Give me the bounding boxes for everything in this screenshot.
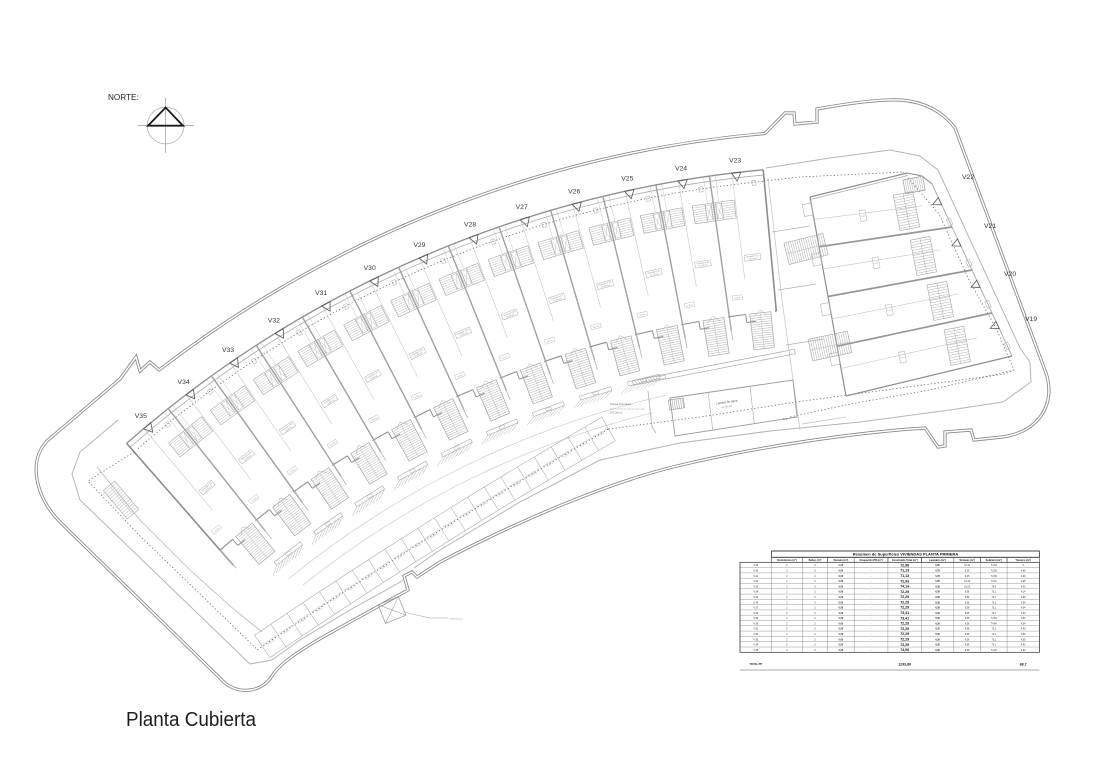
svg-text:73,1: 73,1 xyxy=(992,639,997,641)
svg-text:9,56: 9,56 xyxy=(965,602,970,604)
svg-text:V-19: V-19 xyxy=(753,565,758,567)
svg-text:6,30: 6,30 xyxy=(935,623,940,625)
svg-text:V-35: V-35 xyxy=(753,650,758,652)
svg-text:0,00: 0,00 xyxy=(839,608,844,610)
svg-text:5,78: 5,78 xyxy=(935,576,940,578)
svg-text:4,05: 4,05 xyxy=(1021,639,1026,641)
svg-text:V32: V32 xyxy=(268,318,280,325)
svg-text:72,98: 72,98 xyxy=(900,563,909,567)
svg-text:Zonas Comunes: Zonas Comunes xyxy=(610,402,632,406)
svg-text:V-32: V-32 xyxy=(753,634,758,636)
svg-text:4,04: 4,04 xyxy=(1021,623,1026,625)
svg-text:6,30: 6,30 xyxy=(935,613,940,615)
svg-text:9,35: 9,35 xyxy=(965,576,970,578)
svg-text:Baños (nº): Baños (nº) xyxy=(809,558,822,562)
svg-text:6,30: 6,30 xyxy=(935,650,940,652)
svg-text:Dormitorios (nº): Dormitorios (nº) xyxy=(777,558,796,562)
svg-text:72,29: 72,29 xyxy=(900,595,909,599)
svg-text:6,30: 6,30 xyxy=(935,645,940,647)
svg-text:74,64: 74,64 xyxy=(991,618,997,620)
svg-text:9,05: 9,05 xyxy=(965,613,970,615)
svg-text:V24: V24 xyxy=(675,165,687,172)
svg-text:73,41: 73,41 xyxy=(900,616,909,620)
svg-text:4,04: 4,04 xyxy=(1021,650,1026,652)
svg-text:0,00: 0,00 xyxy=(839,613,844,615)
svg-text:V-34: V-34 xyxy=(753,645,758,647)
svg-text:Lavadero (m²): Lavadero (m²) xyxy=(929,558,946,562)
svg-text:0,00: 0,00 xyxy=(839,650,844,652)
svg-text:4,04: 4,04 xyxy=(1021,613,1026,615)
svg-text:Planta Cubierta: Planta Cubierta xyxy=(126,708,257,731)
svg-text:6,30: 6,30 xyxy=(935,629,940,631)
svg-text:V-31: V-31 xyxy=(753,629,758,631)
svg-text:V26: V26 xyxy=(568,189,580,196)
svg-text:68,7: 68,7 xyxy=(1020,662,1027,666)
svg-text:1233,80: 1233,80 xyxy=(898,662,911,666)
svg-text:V-28: V-28 xyxy=(753,613,758,615)
svg-text:72,29: 72,29 xyxy=(900,622,909,626)
svg-text:0,00: 0,00 xyxy=(839,592,844,594)
svg-text:9,56: 9,56 xyxy=(965,650,970,652)
svg-text:9,56: 9,56 xyxy=(965,597,970,599)
svg-text:6,30: 6,30 xyxy=(935,586,940,588)
svg-text:NORTE:: NORTE: xyxy=(108,93,139,102)
svg-text:V19: V19 xyxy=(1025,316,1037,323)
svg-text:V23: V23 xyxy=(729,158,741,165)
svg-text:4,06: 4,06 xyxy=(1021,634,1026,636)
svg-text:72,29: 72,29 xyxy=(900,627,909,631)
svg-text:72,29: 72,29 xyxy=(900,638,909,642)
svg-text:72,29: 72,29 xyxy=(900,632,909,636)
svg-text:9,05: 9,05 xyxy=(965,618,970,620)
svg-text:73,1: 73,1 xyxy=(992,629,997,631)
svg-text:9,56: 9,56 xyxy=(965,623,970,625)
svg-text:V-21: V-21 xyxy=(753,576,758,578)
svg-text:4,00: 4,00 xyxy=(1021,571,1026,573)
svg-text:4,14: 4,14 xyxy=(1021,592,1026,594)
svg-text:V21: V21 xyxy=(984,223,996,230)
svg-text:10,11: 10,11 xyxy=(964,565,970,567)
svg-text:9,35: 9,35 xyxy=(965,571,970,573)
svg-text:6,30: 6,30 xyxy=(935,597,940,599)
svg-text:73,1: 73,1 xyxy=(992,613,997,615)
svg-text:72,29: 72,29 xyxy=(900,643,909,647)
svg-text:9,56: 9,56 xyxy=(965,645,970,647)
svg-text:6,30: 6,30 xyxy=(935,639,940,641)
svg-text:Solárium (m²): Solárium (m²) xyxy=(986,558,1003,562)
svg-text:4,03: 4,03 xyxy=(1021,629,1026,631)
svg-text:V30: V30 xyxy=(364,265,376,272)
svg-text:0,00: 0,00 xyxy=(839,565,844,567)
svg-text:0,00: 0,00 xyxy=(839,629,844,631)
svg-text:V27: V27 xyxy=(516,204,528,211)
svg-text:0,00: 0,00 xyxy=(839,639,844,641)
svg-text:72,36: 72,36 xyxy=(991,576,997,578)
svg-text:9,56: 9,56 xyxy=(965,634,970,636)
svg-text:9,56: 9,56 xyxy=(965,629,970,631)
svg-text:9,56: 9,56 xyxy=(965,608,970,610)
svg-text:74,14: 74,14 xyxy=(900,585,909,589)
svg-text:0,00: 0,00 xyxy=(839,576,844,578)
svg-text:74,64: 74,64 xyxy=(991,623,997,625)
svg-text:75,4: 75,4 xyxy=(992,586,997,588)
svg-text:5,78: 5,78 xyxy=(935,571,940,573)
svg-text:Parcela (m²): Parcela (m²) xyxy=(834,558,849,562)
svg-text:73,1: 73,1 xyxy=(992,602,997,604)
svg-text:74,06: 74,06 xyxy=(900,648,909,652)
svg-text:E E: E E xyxy=(783,417,787,421)
svg-text:Ocupación PB (m²): Ocupación PB (m²) xyxy=(860,558,883,562)
svg-text:71,13: 71,13 xyxy=(900,569,909,573)
svg-text:Terrazas (m²): Terrazas (m²) xyxy=(959,558,975,562)
svg-text:10,22: 10,22 xyxy=(964,586,970,588)
svg-text:71,13: 71,13 xyxy=(900,574,909,578)
svg-text:9,56: 9,56 xyxy=(965,639,970,641)
svg-text:4,05: 4,05 xyxy=(1021,581,1026,583)
svg-text:V-25: V-25 xyxy=(753,597,758,599)
svg-text:72,29: 72,29 xyxy=(900,601,909,605)
svg-text:V-20: V-20 xyxy=(753,571,758,573)
svg-text:4,00: 4,00 xyxy=(1021,576,1026,578)
svg-text:72,29: 72,29 xyxy=(900,590,909,594)
svg-text:6,30: 6,30 xyxy=(935,618,940,620)
svg-text:Construido Total (m²): Construido Total (m²) xyxy=(892,558,918,562)
svg-text:4,03: 4,03 xyxy=(1021,586,1026,588)
svg-text:72,29: 72,29 xyxy=(900,606,909,610)
svg-text:0,00: 0,00 xyxy=(839,645,844,647)
svg-text:alimentacion: alimentacion xyxy=(450,618,463,621)
svg-text:5,95: 5,95 xyxy=(935,581,940,583)
svg-text:73,1: 73,1 xyxy=(992,592,997,594)
svg-text:72,36: 72,36 xyxy=(991,571,997,573)
svg-text:V34: V34 xyxy=(178,379,190,386)
svg-text:V-33: V-33 xyxy=(753,639,758,641)
svg-text:V20: V20 xyxy=(1004,271,1016,278)
svg-text:74,34: 74,34 xyxy=(991,565,997,567)
svg-text:V-26: V-26 xyxy=(753,602,758,604)
svg-text:V-30: V-30 xyxy=(753,623,758,625)
svg-text:0,00: 0,00 xyxy=(839,602,844,604)
svg-text:73,41: 73,41 xyxy=(900,611,909,615)
svg-text:74,33: 74,33 xyxy=(991,650,997,652)
svg-text:V-23: V-23 xyxy=(753,586,758,588)
svg-text:72,93: 72,93 xyxy=(900,579,909,583)
svg-text:V25: V25 xyxy=(621,176,633,183)
svg-text:3,99: 3,99 xyxy=(1021,597,1026,599)
svg-text:V22: V22 xyxy=(962,174,974,181)
svg-text:V31: V31 xyxy=(315,290,327,297)
svg-text:0,00: 0,00 xyxy=(839,581,844,583)
svg-text:5,00: 5,00 xyxy=(935,565,940,567)
svg-text:V-22: V-22 xyxy=(753,581,758,583)
svg-text:4,04: 4,04 xyxy=(1021,618,1026,620)
svg-text:0,00: 0,00 xyxy=(839,597,844,599)
svg-text:0,00: 0,00 xyxy=(839,586,844,588)
svg-text:4,04: 4,04 xyxy=(1021,608,1026,610)
svg-text:6,30: 6,30 xyxy=(935,592,940,594)
svg-text:73,1: 73,1 xyxy=(992,634,997,636)
svg-text:9,56: 9,56 xyxy=(965,592,970,594)
svg-text:V28: V28 xyxy=(464,222,476,229)
svg-text:0,00: 0,00 xyxy=(839,618,844,620)
svg-text:73,1: 73,1 xyxy=(992,645,997,647)
svg-text:6,30: 6,30 xyxy=(935,634,940,636)
svg-text:TOTAL PP: TOTAL PP xyxy=(750,662,763,666)
svg-text:6,30: 6,30 xyxy=(935,602,940,604)
svg-text:73,1: 73,1 xyxy=(992,608,997,610)
svg-text:V35: V35 xyxy=(135,413,147,420)
svg-text:V-29: V-29 xyxy=(753,618,758,620)
svg-text:4,04: 4,04 xyxy=(1021,602,1026,604)
svg-text:Trastero (m²): Trastero (m²) xyxy=(1015,558,1031,562)
svg-text:Resumen de Superficies VIVIEND: Resumen de Superficies VIVIENDAS PLANTA … xyxy=(853,552,959,557)
svg-text:73,41: 73,41 xyxy=(991,581,997,583)
svg-text:4,01: 4,01 xyxy=(1021,645,1026,647)
svg-text:10,32: 10,32 xyxy=(964,581,970,583)
svg-text:0,00: 0,00 xyxy=(839,623,844,625)
svg-text:V-27: V-27 xyxy=(753,608,758,610)
svg-text:73,1: 73,1 xyxy=(992,597,997,599)
svg-text:V-24: V-24 xyxy=(753,592,758,594)
svg-text:V33: V33 xyxy=(222,347,234,354)
svg-text:6,30: 6,30 xyxy=(935,608,940,610)
svg-text:V29: V29 xyxy=(413,242,425,249)
svg-text:0,00: 0,00 xyxy=(839,571,844,573)
svg-text:0,00: 0,00 xyxy=(839,634,844,636)
svg-text:972,26 m2: 972,26 m2 xyxy=(610,411,623,415)
svg-text:Acceso peatonal y zona de agua: Acceso peatonal y zona de agua y filtro xyxy=(610,408,646,411)
